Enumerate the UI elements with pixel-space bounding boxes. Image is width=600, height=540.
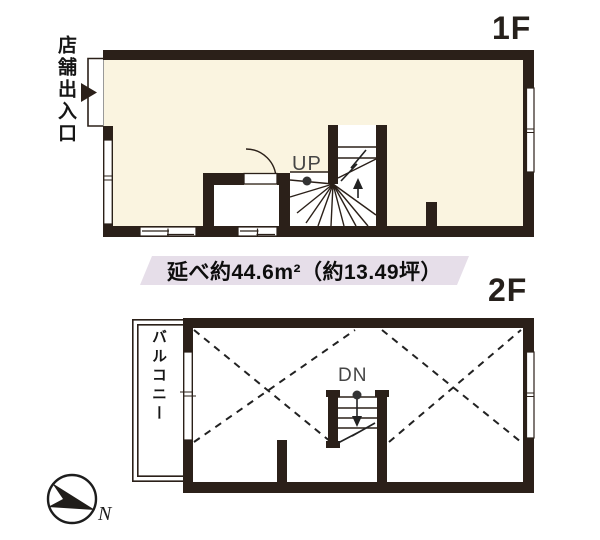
floor1-plan <box>81 50 534 237</box>
window-right-wall-1f <box>527 88 535 172</box>
window-bottom-left <box>140 227 196 236</box>
window-bottom-room <box>238 227 277 236</box>
floor-plan-image: 1F 2F 延べ約44.6m²（約13.49坪） UP DN 店舗出入口 バルコ… <box>0 0 600 540</box>
window-right-wall-2f <box>527 352 535 438</box>
entrance-arrow-icon <box>81 83 97 102</box>
total-area-banner: 延べ約44.6m²（約13.49坪） <box>140 256 469 285</box>
floor1-label: 1F <box>492 12 531 44</box>
stair-start-dot-2f <box>353 391 362 400</box>
up-stairs-label: UP <box>292 154 322 174</box>
store-entrance-label: 店舗出入口 <box>52 35 79 145</box>
compass-icon <box>48 475 96 523</box>
floor2-plan <box>132 318 534 493</box>
north-label: N <box>98 503 111 526</box>
balcony-label: バルコニー <box>148 329 169 424</box>
door-leaf <box>244 174 277 185</box>
floor2-label: 2F <box>488 274 527 306</box>
window-left-wall <box>104 140 112 224</box>
store-entrance-marks <box>81 59 104 127</box>
down-stairs-label: DN <box>338 366 367 385</box>
floor1-small-room-interior <box>214 185 279 226</box>
stair-start-dot <box>303 177 312 186</box>
